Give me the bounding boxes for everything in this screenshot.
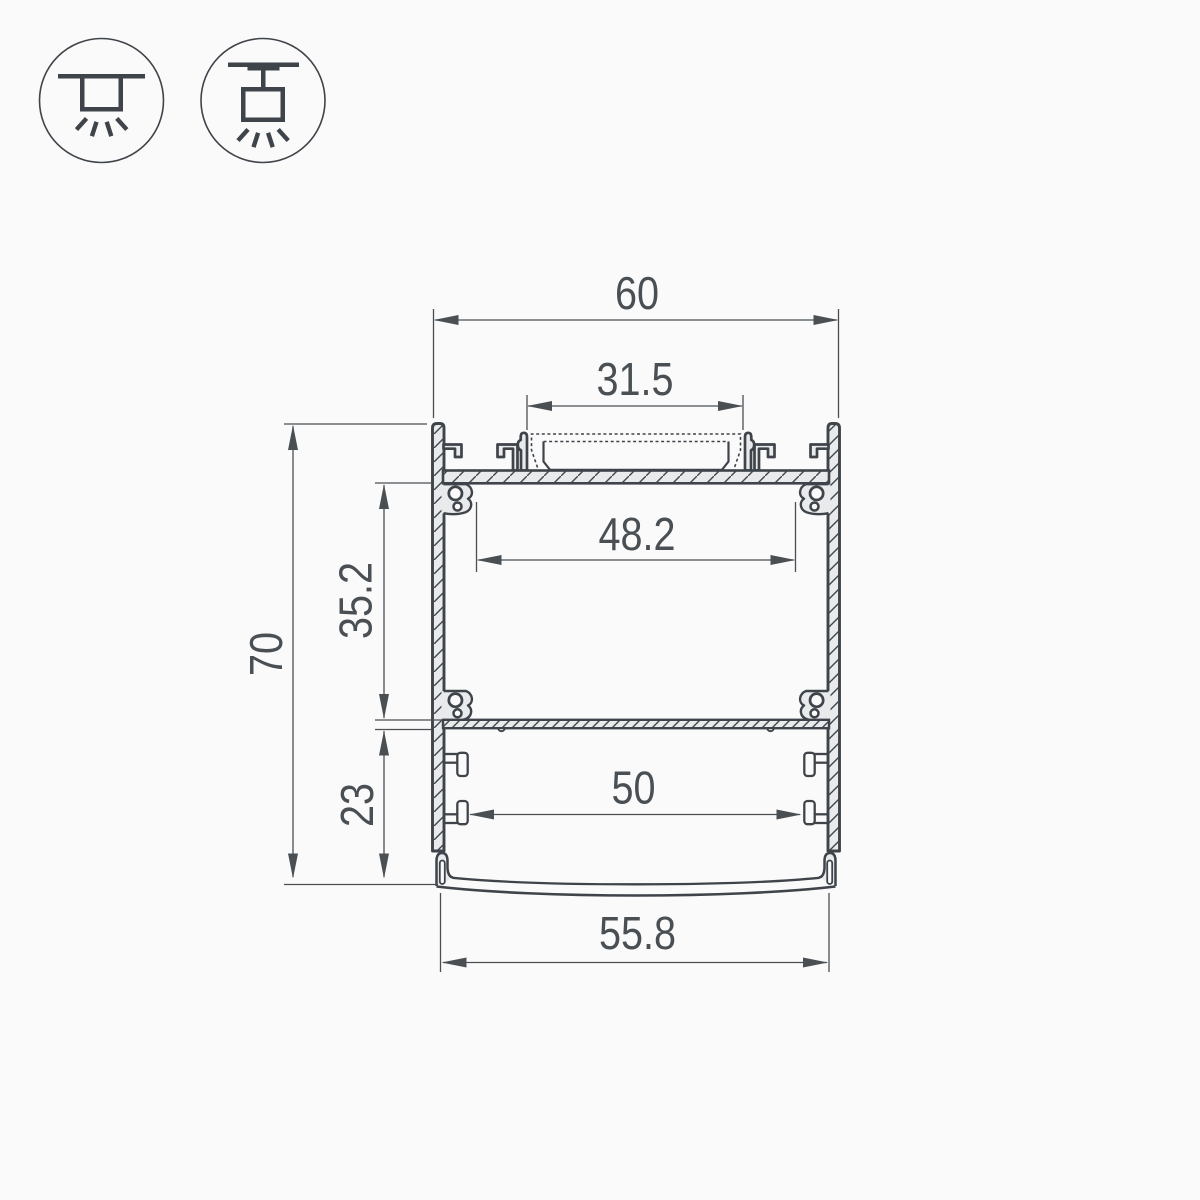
- svg-text:48.2: 48.2: [599, 509, 676, 560]
- svg-text:55.8: 55.8: [599, 908, 676, 959]
- svg-text:35.2: 35.2: [331, 562, 382, 639]
- svg-text:70: 70: [241, 632, 292, 676]
- svg-text:50: 50: [611, 763, 655, 814]
- svg-text:31.5: 31.5: [597, 354, 674, 405]
- svg-text:23: 23: [332, 783, 383, 827]
- svg-text:60: 60: [615, 268, 659, 319]
